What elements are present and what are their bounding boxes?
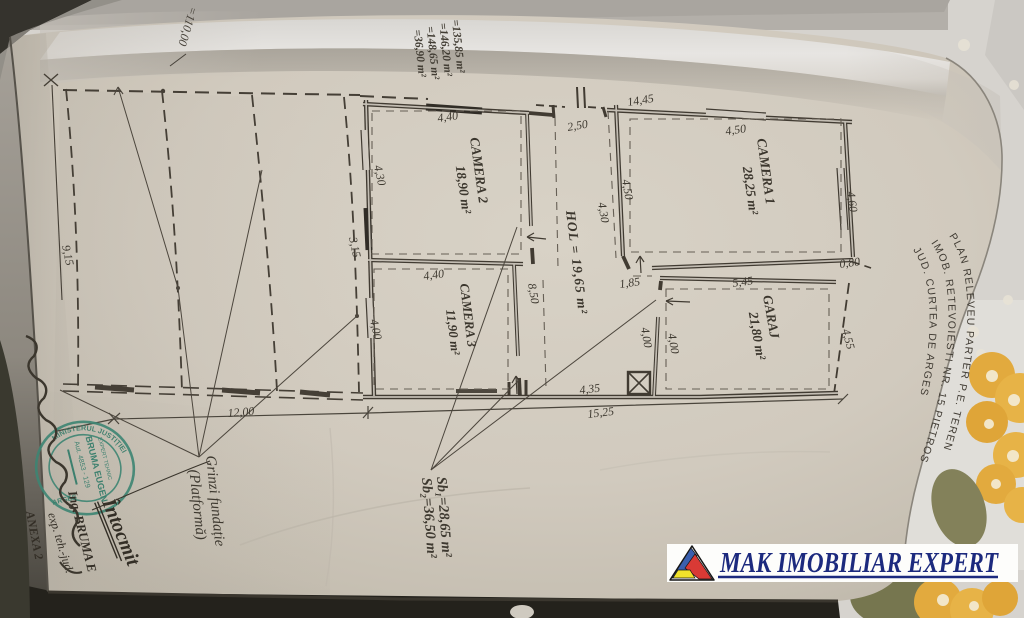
svg-text:0,80: 0,80 xyxy=(838,254,860,271)
svg-text:4,40: 4,40 xyxy=(436,108,458,125)
svg-text:4,50: 4,50 xyxy=(724,121,746,138)
svg-text:5,45: 5,45 xyxy=(731,273,753,290)
svg-text:MAK IMOBILIAR EXPERT: MAK IMOBILIAR EXPERT xyxy=(719,548,999,579)
svg-text:4,40: 4,40 xyxy=(422,266,444,283)
svg-text:4,35: 4,35 xyxy=(579,381,601,397)
svg-text:4,60: 4,60 xyxy=(844,190,861,212)
svg-text:1,85: 1,85 xyxy=(618,274,640,291)
svg-text:12,00: 12,00 xyxy=(227,404,255,420)
